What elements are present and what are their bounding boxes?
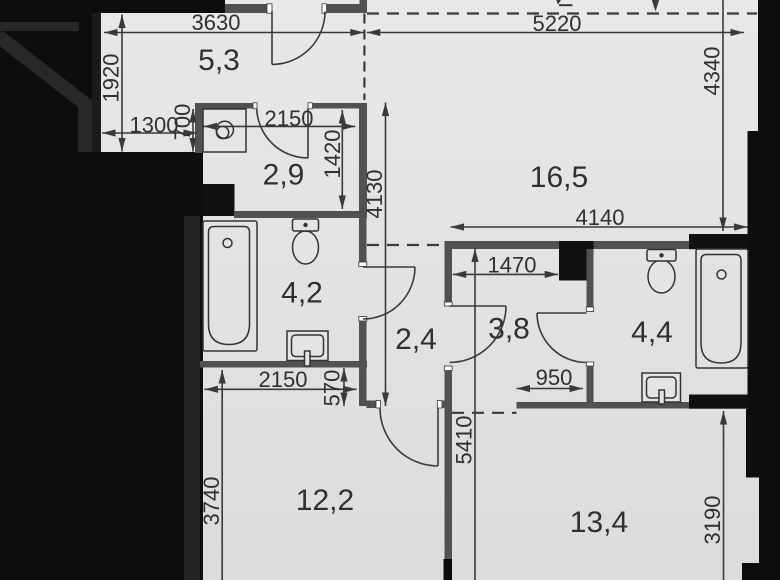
svg-text:1420: 1420 bbox=[320, 130, 345, 179]
svg-text:3,8: 3,8 bbox=[488, 313, 530, 346]
svg-text:3740: 3740 bbox=[199, 477, 224, 526]
svg-text:3190: 3190 bbox=[700, 496, 725, 545]
svg-text:1470: 1470 bbox=[488, 253, 537, 278]
svg-text:13,4: 13,4 bbox=[570, 506, 628, 539]
svg-text:5,3: 5,3 bbox=[198, 44, 240, 77]
svg-text:5220: 5220 bbox=[533, 11, 582, 36]
svg-text:1920: 1920 bbox=[99, 54, 124, 103]
svg-text:12,2: 12,2 bbox=[296, 484, 354, 517]
svg-text:570: 570 bbox=[320, 370, 345, 407]
svg-text:16,5: 16,5 bbox=[530, 161, 588, 194]
svg-text:4,4: 4,4 bbox=[631, 316, 673, 349]
svg-text:2150: 2150 bbox=[265, 106, 314, 131]
svg-text:4340: 4340 bbox=[700, 47, 725, 96]
svg-text:2,9: 2,9 bbox=[263, 159, 305, 192]
svg-text:4,2: 4,2 bbox=[281, 277, 323, 310]
svg-text:950: 950 bbox=[536, 365, 573, 390]
svg-text:700: 700 bbox=[170, 104, 195, 141]
svg-text:4140: 4140 bbox=[576, 205, 625, 230]
svg-text:5410: 5410 bbox=[452, 416, 477, 465]
svg-text:3630: 3630 bbox=[192, 10, 241, 35]
svg-text:2150: 2150 bbox=[259, 367, 308, 392]
svg-text:2,4: 2,4 bbox=[395, 323, 437, 356]
svg-text:4130: 4130 bbox=[362, 170, 387, 219]
